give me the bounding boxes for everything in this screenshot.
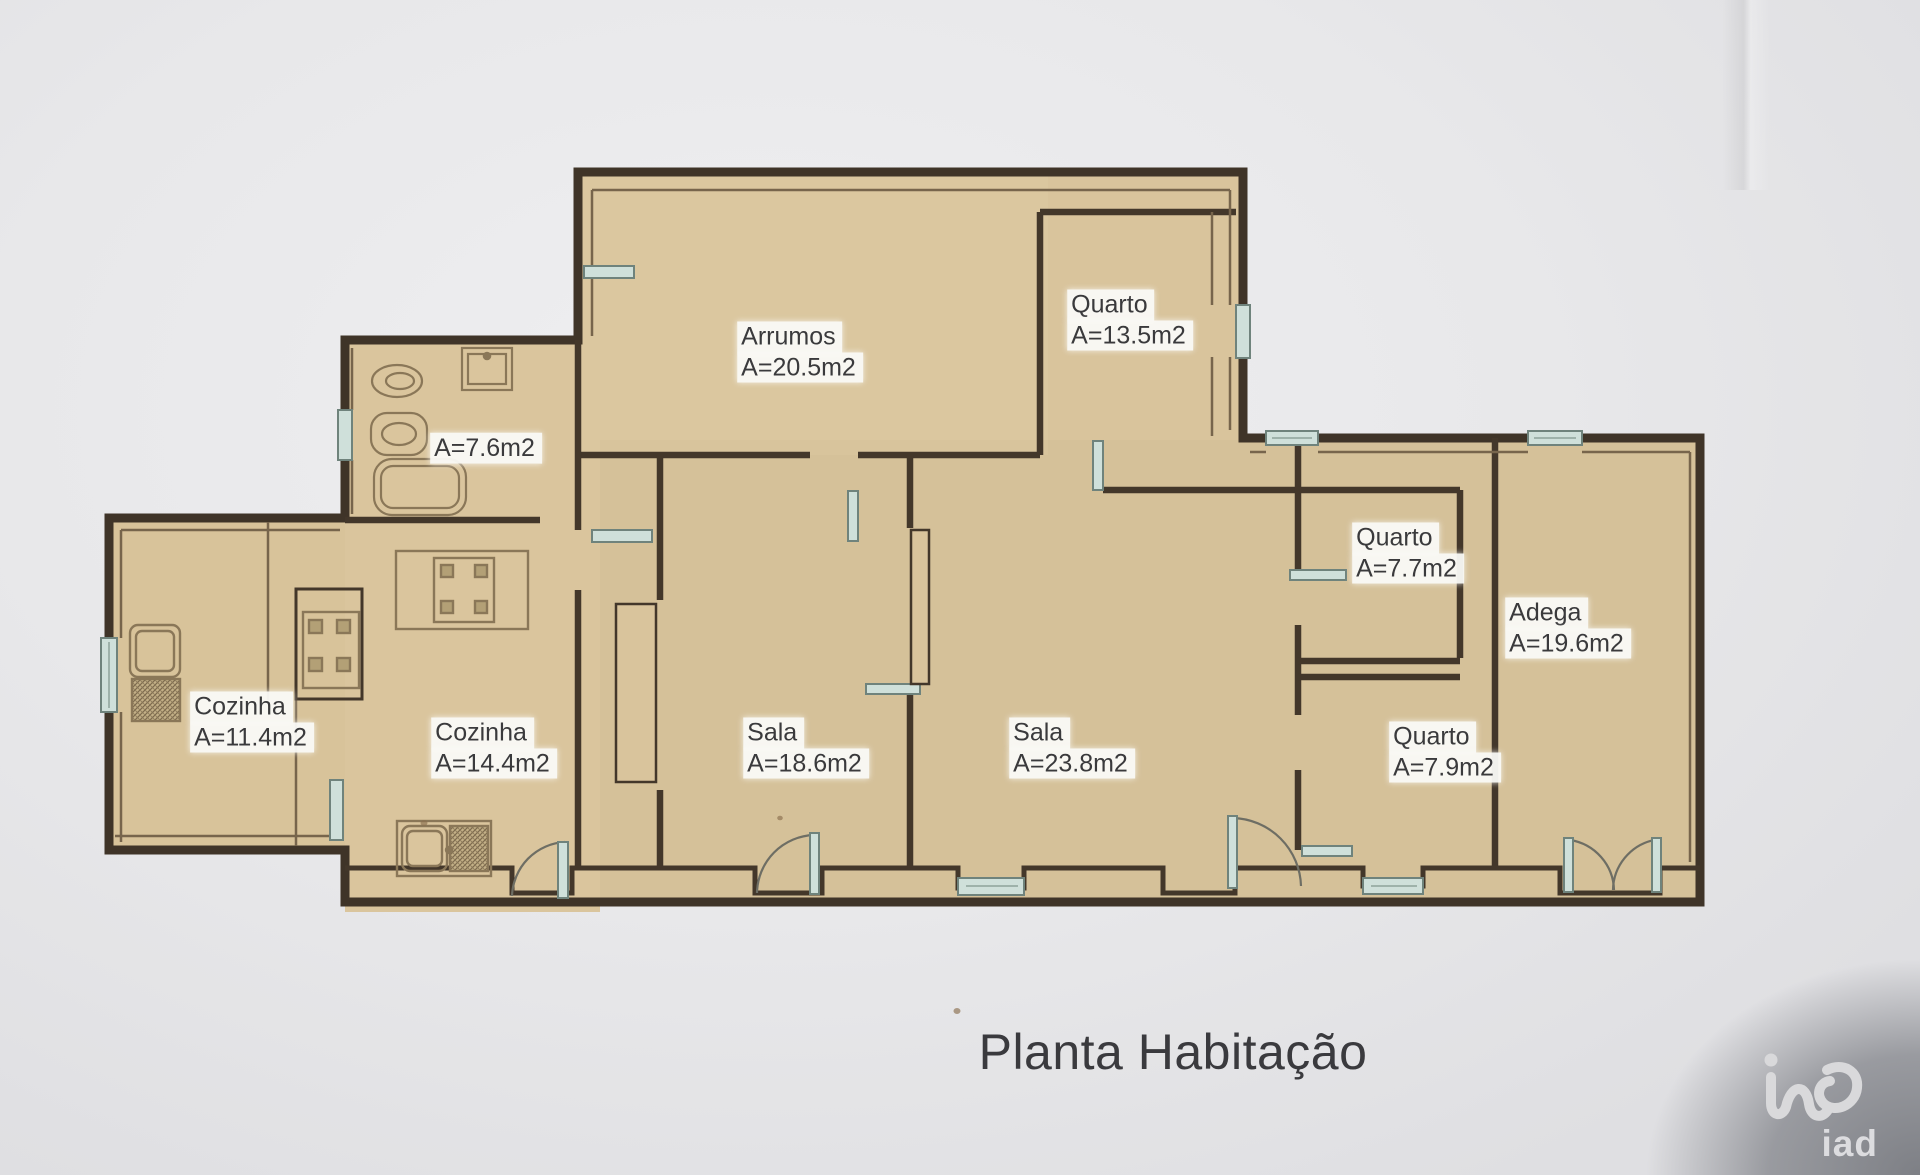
plan-title: Planta Habitação — [979, 1023, 1368, 1081]
dish-drainer — [450, 826, 488, 871]
appliance — [132, 679, 180, 721]
floor-plan-drawing — [0, 0, 1920, 1175]
floor-plan-page: ArrumosA=20.5m2QuartoA=13.5m2A=7.6m2Quar… — [0, 0, 1920, 1175]
iad-logo-text: iad — [1822, 1123, 1878, 1165]
